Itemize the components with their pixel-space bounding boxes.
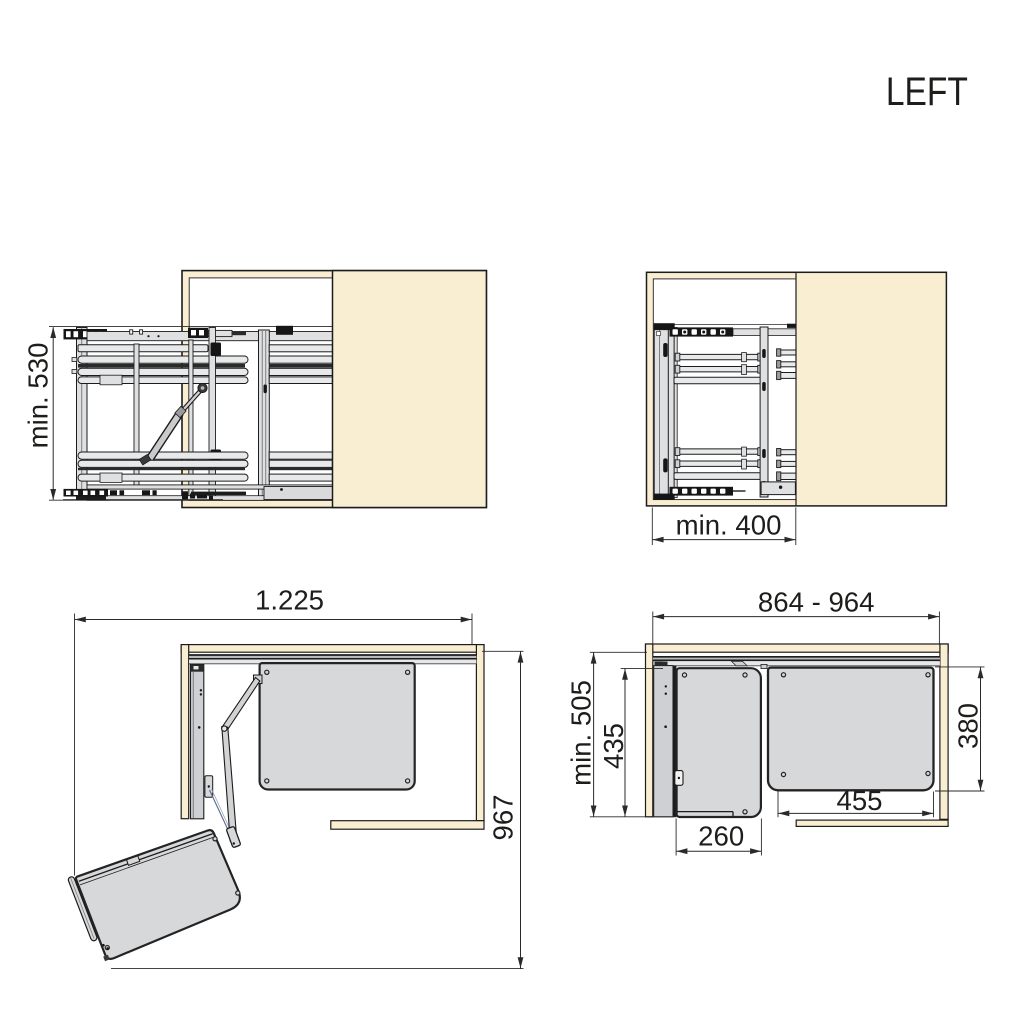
svg-text:1.225: 1.225: [255, 585, 324, 616]
svg-text:864 - 964: 864 - 964: [758, 587, 875, 618]
svg-text:min. 530: min. 530: [23, 343, 54, 449]
svg-text:380: 380: [952, 703, 983, 749]
svg-text:455: 455: [836, 785, 882, 816]
svg-text:min. 505: min. 505: [565, 680, 596, 786]
svg-text:435: 435: [598, 723, 629, 769]
svg-text:LEFT: LEFT: [886, 70, 968, 114]
svg-text:260: 260: [698, 821, 744, 852]
svg-text:min. 400: min. 400: [676, 510, 782, 541]
svg-text:967: 967: [488, 794, 519, 840]
